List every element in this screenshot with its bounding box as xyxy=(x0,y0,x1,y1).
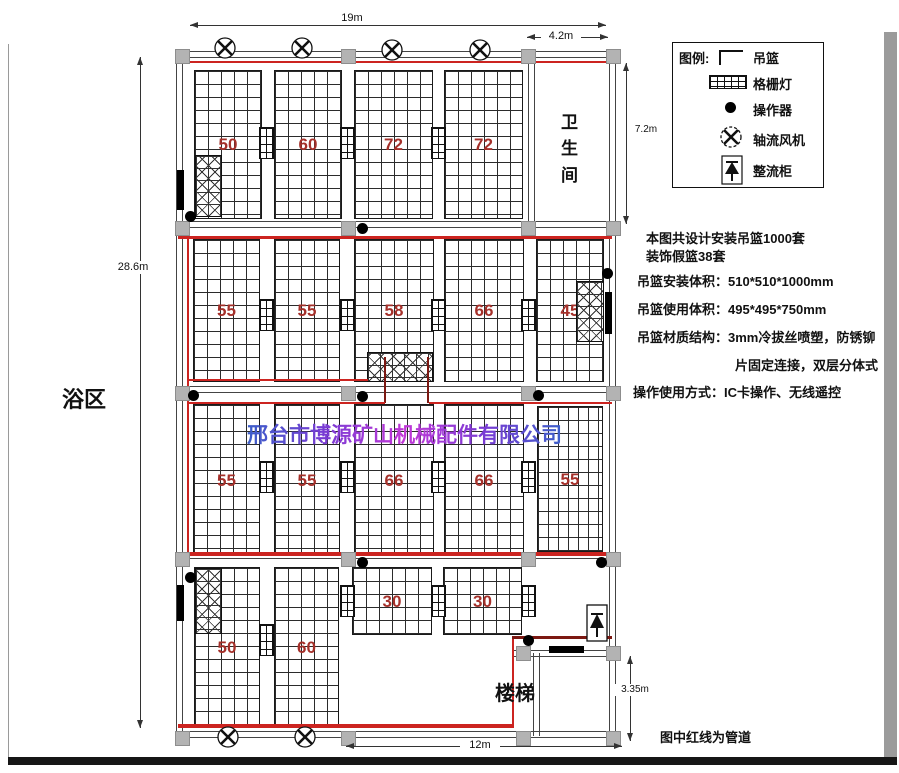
grille-light-icon xyxy=(340,585,355,617)
block-count: 58 xyxy=(385,302,404,319)
spec-usable-volume: 吊篮使用体积：495*495*750mm xyxy=(637,299,826,318)
wall-toilet xyxy=(528,56,535,222)
grille-light-icon xyxy=(431,461,446,493)
legend-title: 图例: xyxy=(679,48,709,67)
basket-block: 55 xyxy=(274,239,340,382)
watermark-company-name: 邢台市博源矿山机械配件有限公司 xyxy=(247,419,562,449)
decorative-basket-hatch xyxy=(195,568,222,634)
operator-icon xyxy=(602,268,613,279)
pipe-center-stub-left xyxy=(384,357,386,403)
spec-material-structure: 吊篮材质结构：3mm冷拔丝喷塑，防锈铆 xyxy=(637,327,875,346)
dimension-label-19m: 19m xyxy=(330,12,374,25)
dimension-label-28.6m: 28.6m xyxy=(108,261,158,274)
dimension-line-7.2m xyxy=(626,63,627,224)
basket-block: 30 xyxy=(352,567,432,635)
column xyxy=(521,221,536,236)
legend-item-label: 操作器 xyxy=(753,100,792,119)
block-count: 66 xyxy=(475,472,494,489)
column xyxy=(341,386,356,401)
column xyxy=(175,49,190,64)
dimension-line-3.35m xyxy=(630,656,631,741)
basket-block: 30 xyxy=(443,567,522,635)
pipe-center-stub-right xyxy=(427,357,429,403)
block-count: 55 xyxy=(298,302,317,319)
axial-fan-icon xyxy=(213,36,237,60)
basket-block: 72 xyxy=(444,70,523,219)
block-count: 55 xyxy=(561,471,580,488)
dimension-label-12m: 12m xyxy=(460,739,500,752)
spec-decorative-baskets: 装饰假篮38套 xyxy=(646,246,725,265)
column xyxy=(606,49,621,64)
grille-light-icon xyxy=(431,127,446,159)
column xyxy=(606,552,621,567)
decorative-basket-hatch xyxy=(195,155,222,217)
column xyxy=(606,646,621,661)
column xyxy=(521,552,536,567)
block-count: 72 xyxy=(384,136,403,153)
operator-icon xyxy=(188,390,199,401)
block-count: 50 xyxy=(218,639,237,656)
spec-total-baskets: 本图共设计安装吊篮1000套 xyxy=(646,228,805,247)
room-label-stairs: 楼梯 xyxy=(495,677,535,706)
axial-fan-icon xyxy=(719,125,743,149)
grille-light-icon xyxy=(521,299,536,331)
basket-block: 60 xyxy=(274,567,339,727)
column xyxy=(521,49,536,64)
operator-icon xyxy=(533,390,544,401)
axial-fan-icon xyxy=(290,36,314,60)
rectifier-cabinet-icon xyxy=(586,604,608,642)
decorative-basket-hatch xyxy=(576,281,604,342)
basket-block: 72 xyxy=(354,70,433,219)
operator-icon xyxy=(523,635,534,646)
operator-icon xyxy=(357,557,368,568)
block-count: 30 xyxy=(473,593,492,610)
wall-bottom xyxy=(176,731,616,738)
axial-fan-icon xyxy=(293,725,317,749)
legend-item-label: 吊篮 xyxy=(753,48,779,67)
grille-light-icon xyxy=(709,75,747,89)
grille-light-icon xyxy=(340,127,355,159)
wall-fixture-bar xyxy=(605,292,612,334)
pipe-row3-top-right xyxy=(429,402,612,404)
dimension-label-7.2m: 7.2m xyxy=(630,124,662,136)
dimension-label-3.35m: 3.35m xyxy=(612,684,658,696)
spec-operation-mode: 操作使用方式：IC卡操作、无线遥控 xyxy=(633,382,841,401)
block-count: 66 xyxy=(475,302,494,319)
column xyxy=(341,221,356,236)
axial-fan-icon xyxy=(216,725,240,749)
grille-light-icon xyxy=(259,127,274,159)
dimension-label-4.2m: 4.2m xyxy=(541,30,581,43)
block-count: 60 xyxy=(297,639,316,656)
grille-light-icon xyxy=(259,624,274,656)
page-right-shadow xyxy=(884,32,897,759)
column xyxy=(341,49,356,64)
column xyxy=(341,552,356,567)
grille-light-icon xyxy=(521,461,536,493)
column xyxy=(175,552,190,567)
grille-light-icon xyxy=(521,585,536,617)
beam-line-1 xyxy=(178,221,614,228)
spec-install-volume: 吊篮安装体积：510*510*1000mm xyxy=(637,271,834,290)
operator-icon xyxy=(725,102,736,113)
block-count: 55 xyxy=(298,472,317,489)
block-count: 66 xyxy=(385,472,404,489)
basket-block: 55 xyxy=(193,239,260,382)
dimension-line-28.6m xyxy=(140,57,141,728)
column xyxy=(606,386,621,401)
grille-light-icon xyxy=(431,585,446,617)
wall-fixture-bar xyxy=(177,170,184,210)
room-label-bath-area: 浴区 xyxy=(62,382,106,414)
spec-material-structure-cont: 片固定连接，双层分体式 xyxy=(735,355,878,374)
operator-icon xyxy=(357,391,368,402)
block-count: 30 xyxy=(383,593,402,610)
legend-item-label: 轴流风机 xyxy=(753,130,805,149)
legend-box: 图例: 吊篮 格栅灯 操作器 轴流风机 整流柜 xyxy=(672,42,824,188)
grille-light-icon xyxy=(340,461,355,493)
grille-light-icon xyxy=(259,461,274,493)
operator-icon xyxy=(357,223,368,234)
page-left-border xyxy=(8,44,9,757)
page-bottom-border xyxy=(8,757,897,765)
grille-light-icon xyxy=(340,299,355,331)
column xyxy=(175,731,190,746)
beam-line-2 xyxy=(178,386,614,393)
basket-block: 66 xyxy=(444,239,524,382)
wall-fixture-bar xyxy=(177,585,184,621)
legend-item-label: 格栅灯 xyxy=(753,74,792,93)
room-label-toilet: 卫生间 xyxy=(561,110,581,189)
block-count: 50 xyxy=(219,136,238,153)
column xyxy=(516,646,531,661)
pipe-row3-bottom xyxy=(178,552,612,556)
operator-icon xyxy=(185,211,196,222)
legend-item-label: 整流柜 xyxy=(753,161,792,180)
block-count: 55 xyxy=(217,302,236,319)
basket-icon xyxy=(719,50,743,65)
dimension-line-19m xyxy=(190,25,606,26)
wall-fixture-bar xyxy=(549,646,584,653)
red-line-note: 图中红线为管道 xyxy=(660,727,751,746)
operator-icon xyxy=(185,572,196,583)
pipe-row3-top-left xyxy=(189,402,385,404)
operator-icon xyxy=(596,557,607,568)
pipe-row2-top xyxy=(178,236,612,239)
pipe-row2-bottom xyxy=(188,379,368,381)
grille-light-icon xyxy=(431,299,446,331)
floor-plan-page: 50 60 72 72 55 55 58 66 45 55 55 66 66 5… xyxy=(0,0,899,773)
column xyxy=(516,731,531,746)
decorative-basket-hatch xyxy=(367,352,433,382)
block-count: 55 xyxy=(217,472,236,489)
basket-block: 60 xyxy=(274,70,342,219)
block-count: 72 xyxy=(474,136,493,153)
axial-fan-icon xyxy=(468,38,492,62)
grille-light-icon xyxy=(259,299,274,331)
rectifier-cabinet-icon xyxy=(721,155,743,185)
column xyxy=(175,221,190,236)
axial-fan-icon xyxy=(380,38,404,62)
column xyxy=(606,221,621,236)
block-count: 60 xyxy=(299,136,318,153)
